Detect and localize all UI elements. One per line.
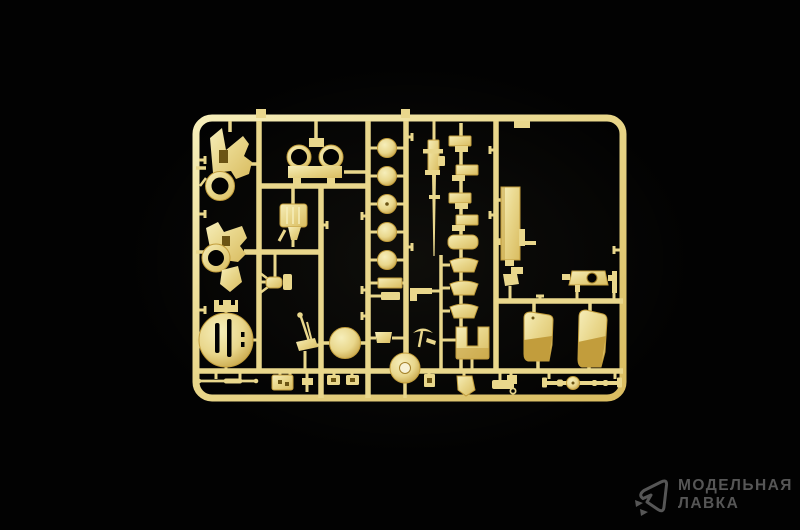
part-hub-discs [368, 139, 406, 270]
frame-tab [401, 109, 410, 118]
part-rear-axle [542, 371, 622, 390]
part-seat-left [524, 301, 553, 371]
part-mudguard-panels [441, 258, 478, 318]
part-small-trapezoid-bracket [368, 332, 406, 343]
paper-plane-logo-icon [634, 473, 672, 517]
watermark-line1: МОДЕЛЬНАЯ [678, 477, 793, 495]
part-twin-ring-mount [287, 121, 368, 186]
part-rail-feet [503, 260, 523, 301]
part-gun-mount-plate [562, 271, 617, 301]
part-chassis-rail [496, 187, 525, 260]
watermark-line2: ЛАВКА [678, 495, 793, 513]
part-gear-lever [296, 312, 321, 371]
part-pin-bracket [302, 371, 313, 392]
part-u-shaped-panel [441, 327, 489, 371]
part-transfer-case-b [196, 222, 247, 292]
part-seat-right [578, 301, 607, 371]
part-ring-eyelet [507, 371, 517, 395]
part-jerry-can [279, 186, 307, 247]
part-plate-pair [368, 278, 406, 300]
part-l-bracket [410, 288, 441, 301]
part-machine-gun [423, 121, 445, 256]
part-spare-hub-disc [390, 353, 420, 398]
part-leaf-spring-brackets [448, 136, 478, 249]
part-boot-bracket [457, 371, 475, 396]
product-photo: МОДЕЛЬНАЯ ЛАВКА [0, 0, 800, 530]
part-tool-box [272, 371, 293, 390]
part-road-wheel [321, 328, 368, 359]
sprue-photo [0, 0, 800, 530]
store-watermark: МОДЕЛЬНАЯ ЛАВКА [634, 470, 800, 520]
frame-tab [256, 109, 266, 118]
part-pickaxe [413, 329, 436, 348]
part-tow-hitch [259, 252, 292, 293]
watermark-text: МОДЕЛЬНАЯ ЛАВКА [678, 477, 796, 513]
frame-tab [514, 121, 530, 128]
